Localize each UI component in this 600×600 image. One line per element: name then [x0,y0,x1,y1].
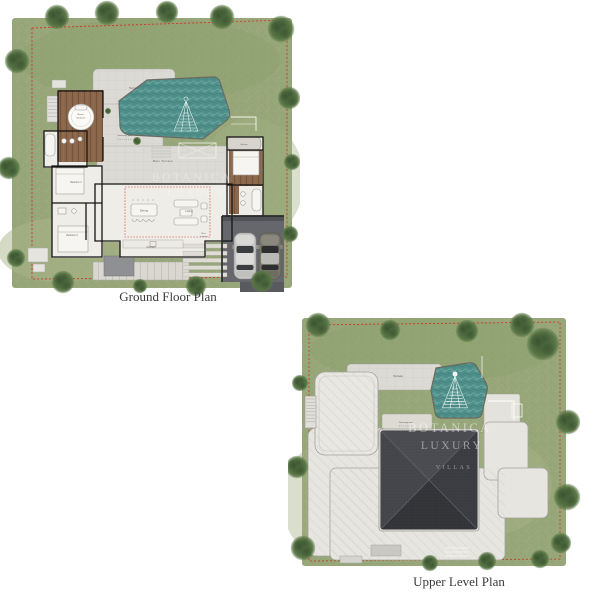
brochure-page: Terrace Swimming pool Terrace Main Terra… [0,0,600,600]
watermark-luxury: LUXURY [167,188,225,199]
bed [58,226,88,252]
sofa [174,218,198,225]
upper-plan-caption: Upper Level Plan [349,574,569,590]
sofa [174,200,198,207]
label-kitchen: Kitchen [147,245,156,249]
label-living: Living [185,209,193,213]
bathtub [252,189,261,211]
label-main-terrace: Main Terrace [153,159,173,163]
ground-floor-plan-drawing: Terrace Swimming pool Terrace Main Terra… [0,0,300,296]
watermark-botanica: BOTANICA [151,170,232,184]
watermark-villas: VILLAS [436,465,472,471]
label-terrace: Terrace [129,86,139,90]
label-bedroom2: Bedroom 2 [70,181,82,184]
label-dining: Dining [140,209,148,213]
label-bedroom3: Bedroom 3 [66,234,78,237]
watermark-botanica: BOTANICA [408,421,492,435]
label-bedroom1: Bedroom 1 [239,168,251,171]
bed [233,151,259,175]
fountain-dot [453,372,458,377]
watermark-luxury: LUXURY [421,440,483,452]
car-silver [233,233,258,279]
bathtub [45,134,55,156]
label-upper-terrace: Terrace [393,374,403,378]
upper-level-plan-drawing: Terrace Swimming pool Terrace BOTANICA L… [288,302,588,574]
label-balcony: Balcony [240,144,247,146]
bed [56,168,84,194]
ground-plan-caption: Ground Floor Plan [58,289,278,305]
